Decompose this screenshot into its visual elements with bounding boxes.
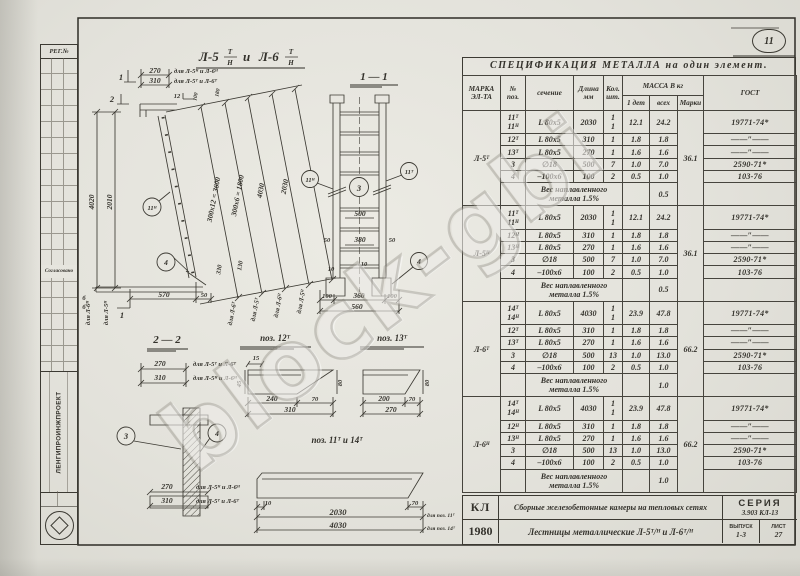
spec-cell: 7 (604, 254, 623, 266)
spec-cell: 23.9 (623, 301, 650, 324)
spec-cell: ——″—— (704, 134, 797, 146)
logo-ring-icon (45, 511, 74, 540)
side-view: 11ᴴ 4 270 для Л-5ᴴ и Л-6ᴴ 310 для Л-5ᵀ и… (82, 66, 336, 326)
marki-cell: 66.2 (678, 301, 704, 396)
spec-row: 12ᴴL 80х531011.81.8——″—— (463, 420, 797, 432)
title-conj: и (243, 49, 250, 64)
spec-cell: 13.0 (650, 445, 678, 457)
side-stamp: РЕГ.№ Согласовано ЛЕНГИПРОИНЖПРОЕКТ (40, 44, 78, 545)
dim-label: 270 (160, 482, 173, 491)
series-description: Сборные железобетонные камеры на тепловы… (499, 496, 723, 520)
title-sub: Н (226, 59, 233, 67)
spec-cell: 1 1 (604, 206, 623, 229)
spec-cell: 1.0 (650, 457, 678, 469)
spec-cell (623, 374, 650, 397)
spec-cell: –100х6 (526, 266, 574, 278)
spec-cell: 14ᵀ 14ᴴ (501, 301, 526, 324)
spec-cell: 7.0 (650, 158, 678, 170)
spec-cell: L 80х5 (526, 301, 574, 324)
spec-cell: 1.6 (650, 432, 678, 444)
detail-title: поз. 11ᵀ и 14ᵀ (312, 435, 364, 445)
col-header-poz: № поз. (501, 76, 526, 111)
spec-cell (501, 278, 526, 301)
spec-cell: 1.6 (650, 337, 678, 349)
title-sub: Н (287, 59, 294, 67)
spec-cell: 2030 (574, 111, 604, 134)
spec-cell: 1 (604, 134, 623, 146)
callout-label: 11ᵀ (405, 169, 414, 176)
spec-cell: ——″—— (704, 420, 797, 432)
spec-cell: L 80х5 (526, 111, 574, 134)
dim-label: 2030 (279, 178, 291, 196)
spec-table: МАРКА ЭЛ-ТА № поз. сечение Длина мм Кол.… (462, 75, 797, 493)
series-label: СЕРИЯ (738, 498, 781, 509)
dim-label: 240 (265, 394, 278, 403)
spec-cell: ——″—— (704, 337, 797, 349)
spec-cell: 11ᵀ 11ᴴ (501, 206, 526, 229)
spec-cell: 1.8 (650, 229, 678, 241)
col-header-mass: МАССА В кг (623, 76, 704, 96)
spec-cell: 1 1 (604, 111, 623, 134)
spec-cell: 13ᴴ (501, 241, 526, 253)
section-cut-label: 1 (120, 310, 124, 320)
spec-cell: 13 (604, 445, 623, 457)
spec-cell: 12ᵀ (501, 134, 526, 146)
spec-cell: 24.2 (650, 111, 678, 134)
spec-cell: L 80х5 (526, 420, 574, 432)
organization-block: ЛЕНГИПРОИНЖПРОЕКТ (41, 371, 77, 493)
mark-cell: Л-6ᵀ (463, 301, 501, 396)
spec-cell: 1.8 (650, 134, 678, 146)
spec-cell: L 80х5 (526, 432, 574, 444)
dim-note: для Л-5ᴴ и Л-6ᴴ (193, 375, 238, 382)
spec-cell: 1.0 (650, 374, 678, 397)
spec-cell: 19771-74* (704, 111, 797, 134)
dim-label: 310 (153, 373, 166, 382)
spec-cell: 13 (604, 349, 623, 361)
spec-cell: 19771-74* (704, 301, 797, 324)
spec-cell (501, 469, 526, 493)
spec-cell: 100 (574, 266, 604, 278)
spec-row: 3∅1850071.07.02590-71* (463, 158, 797, 170)
spec-cell: 12.1 (623, 206, 650, 229)
spec-row: 3∅1850071.07.02590-71* (463, 254, 797, 266)
spec-cell: 3 (501, 158, 526, 170)
spec-cell: 1.8 (650, 420, 678, 432)
title-mark-1: Л-5 (198, 49, 219, 64)
col-header-sec: сечение (526, 76, 574, 111)
spec-cell: 2590-71* (704, 254, 797, 266)
spec-row: 4–100х610020.51.0103-76 (463, 457, 797, 469)
spec-row: 4–100х610020.51.0103-76 (463, 361, 797, 373)
spec-row: 12ᵀL 80х531011.81.8——″—— (463, 134, 797, 146)
dim-label: 270 (384, 405, 397, 414)
position-details: поз. 12ᵀ 15 45 80 240 70 310 поз. 13ᵀ 80… (236, 333, 456, 533)
spec-cell: 1 1 (604, 397, 623, 420)
dim-note: для Л-6ᴴ (85, 300, 92, 325)
spec-row: Л-5ᴴ11ᵀ 11ᴴL 80х520301 112.124.236.11977… (463, 206, 797, 229)
dim-note: для Л-6ᵀ (227, 301, 239, 326)
spec-cell: 2590-71* (704, 349, 797, 361)
spec-cell: 1.6 (650, 241, 678, 253)
spec-cell (623, 278, 650, 301)
spec-cell: 11ᵀ 11ᴴ (501, 111, 526, 134)
spec-weld-row: Вес наплавленного металла 1.5%0.5 (463, 278, 797, 301)
spec-cell: 1 (604, 337, 623, 349)
spec-cell: 13ᵀ (501, 337, 526, 349)
marki-cell: 36.1 (678, 206, 704, 301)
spec-weld-row: Вес наплавленного металла 1.5%1.0 (463, 469, 797, 493)
spec-cell: ——″—— (704, 229, 797, 241)
spec-cell: 12ᴴ (501, 420, 526, 432)
spec-cell: 270 (574, 432, 604, 444)
spec-cell: 1.8 (623, 229, 650, 241)
drawing-sheet: РЕГ.№ Согласовано ЛЕНГИПРОИНЖПРОЕКТ 11 Л… (0, 0, 800, 576)
corner-mark: 11 (752, 29, 786, 53)
dim-label: 180 (214, 88, 222, 97)
spec-cell: 2 (604, 361, 623, 373)
spec-cell: L 80х5 (526, 241, 574, 253)
spec-row: Л-6ᴴ14ᵀ 14ᴴL 80х540301 123.947.866.21977… (463, 397, 797, 420)
dim-label: 80 (424, 379, 431, 386)
series-logo: КЛ (463, 496, 499, 520)
section-title: 2 — 2 (152, 334, 181, 346)
spec-cell: 2590-71* (704, 158, 797, 170)
spec-cell: 1 (604, 241, 623, 253)
dim-label: 50 (324, 237, 331, 244)
callout-label: 4 (163, 258, 168, 267)
dim-label: 10 (328, 266, 335, 273)
dim-label: 100 (192, 92, 200, 101)
dim-label: 4030 (255, 182, 267, 200)
spec-cell: 270 (574, 337, 604, 349)
spec-cell: 0.5 (650, 278, 678, 301)
dim-note: для Л-5ᵀ и Л-6ᵀ (196, 498, 239, 505)
spec-cell: 500 (574, 158, 604, 170)
spec-cell (704, 183, 797, 206)
dim-label: 15 (253, 355, 260, 362)
spec-cell: L 80х5 (526, 134, 574, 146)
spec-cell: 1.0 (650, 469, 678, 493)
spec-cell: 100 (574, 457, 604, 469)
spec-cell: 1.6 (623, 241, 650, 253)
dim-label: 70 (312, 396, 319, 403)
dim-label: 300х12 = 3600 (205, 176, 223, 224)
dim-note: для Л-5ᵀ и Л-6ᵀ (193, 361, 236, 368)
dim-label: 270 (153, 359, 166, 368)
spec-row: 3∅18500131.013.02590-71* (463, 349, 797, 361)
spec-cell: 13ᵀ (501, 146, 526, 158)
weld-note-cell: Вес наплавленного металла 1.5% (526, 374, 623, 397)
spec-cell: –100х6 (526, 170, 574, 182)
spec-cell (704, 278, 797, 301)
col-header-m1: 1 дет (623, 96, 650, 111)
spec-cell: 270 (574, 241, 604, 253)
detail-title: поз. 12ᵀ (260, 333, 290, 343)
section-cut-label: 2 (109, 94, 115, 104)
dim-note: для Л-6ᴴ (273, 292, 285, 318)
spec-cell: 2 (604, 457, 623, 469)
spec-cell: 1.0 (623, 445, 650, 457)
spec-cell (501, 183, 526, 206)
dim-label: 200 (377, 394, 390, 403)
spec-cell: 1 (604, 432, 623, 444)
spec-cell: 3 (501, 254, 526, 266)
spec-row: 4–100х610020.51.0103-76 (463, 170, 797, 182)
spec-cell (623, 183, 650, 206)
year-stamp: 1980 (463, 520, 499, 543)
section-2-2-view: 2 — 2 3 4 270 для Л-5ᵀ и Л-6ᵀ 310 для Л-… (117, 334, 241, 516)
pos-flag-label: 12 (174, 93, 181, 100)
title-mark-2: Л-6 (258, 49, 279, 64)
dim-label: 560 (351, 302, 363, 311)
dim-label: 50 (389, 237, 396, 244)
dim-label: 4030 (329, 520, 348, 530)
spec-row: 13ᵀL 80х527011.61.6——″—— (463, 146, 797, 158)
spec-cell: 12ᵀ (501, 325, 526, 337)
dim-note: для поз. 14ᵀ (427, 525, 456, 532)
spec-cell: 103-76 (704, 266, 797, 278)
spec-cell: 270 (574, 146, 604, 158)
spec-cell: ∅18 (526, 349, 574, 361)
mark-cell: Л-6ᴴ (463, 397, 501, 493)
spec-cell: 1 (604, 229, 623, 241)
dim-note: для Л-5ᴴ (103, 300, 110, 325)
dim-label: 70 (409, 396, 416, 403)
dim-label: 570 (158, 290, 170, 299)
title-block: КЛ 1980 Сборные железобетонные камеры на… (462, 495, 796, 545)
marki-cell: 66.2 (678, 397, 704, 493)
dim-label: 2030 (329, 507, 348, 517)
spec-cell: 100 (574, 170, 604, 182)
spec-cell: 103-76 (704, 361, 797, 373)
spec-cell: 1.0 (623, 158, 650, 170)
spec-cell: 1.8 (650, 325, 678, 337)
spec-cell: 14ᵀ 14ᴴ (501, 397, 526, 420)
spec-cell: ——″—— (704, 146, 797, 158)
spec-cell: 1.6 (623, 146, 650, 158)
dim-label: 2010 (105, 194, 114, 210)
dim-note: для Л-5ᴴ и Л-6ᴴ (174, 68, 219, 75)
section-cut-label: 1 (119, 72, 123, 82)
dim-label: 10 (361, 261, 368, 268)
issue-value: 1-3 (736, 530, 746, 539)
spec-cell: ——″—— (704, 241, 797, 253)
callout-label: 11ᴴ (306, 177, 316, 184)
mark-cell: Л-5ᴴ (463, 206, 501, 301)
callout-label: 3 (123, 431, 129, 441)
spec-cell: 19771-74* (704, 397, 797, 420)
spec-cell (501, 374, 526, 397)
spec-cell: 2590-71* (704, 445, 797, 457)
title-sup: Т (289, 48, 294, 56)
sheet-value: 27 (775, 530, 783, 539)
dim-label: 310 (160, 496, 173, 505)
main-title: Л-5 Т Н и Л-6 Т Н (196, 48, 305, 68)
spec-cell: 1.8 (623, 420, 650, 432)
dim-label: 380 (353, 235, 366, 244)
spec-cell: 0.5 (650, 183, 678, 206)
series-value: 3.903 КЛ-13 (742, 509, 778, 517)
dim-label: 100 (387, 293, 398, 300)
spec-header-row: МАРКА ЭЛ-ТА № поз. сечение Длина мм Кол.… (463, 76, 797, 96)
callout-label: 3 (356, 183, 362, 193)
spec-cell: 103-76 (704, 170, 797, 182)
spec-cell: ——″—— (704, 325, 797, 337)
dim-note: для Л-5ᵀ (250, 297, 262, 322)
signature-grid (41, 58, 77, 371)
spec-row: 3∅18500131.013.02590-71* (463, 445, 797, 457)
spec-cell: 1 (604, 420, 623, 432)
spec-row: 4–100х610020.51.0103-76 (463, 266, 797, 278)
spec-cell: 1.8 (623, 134, 650, 146)
spec-cell: 1.0 (650, 266, 678, 278)
dim-label: 50 (201, 292, 208, 299)
spec-cell: 1.6 (623, 432, 650, 444)
dim-label: 330 (215, 264, 224, 277)
spec-cell: 1.0 (623, 254, 650, 266)
spec-cell: 7.0 (650, 254, 678, 266)
dim-label: 310 (283, 405, 296, 414)
spec-weld-row: Вес наплавленного металла 1.5%1.0 (463, 374, 797, 397)
spec-cell: 100 (574, 361, 604, 373)
col-header-mark: МАРКА ЭЛ-ТА (463, 76, 501, 111)
dim-label: 500 (354, 209, 366, 218)
dim-label: 360 (352, 291, 365, 300)
callout-label: 4 (214, 429, 219, 438)
spec-cell: 1.6 (650, 146, 678, 158)
spec-cell: 0.5 (623, 170, 650, 182)
spec-cell: 4 (501, 361, 526, 373)
sheet-title: Лестницы металлические Л-5ᵀ/ᴴ и Л-6ᵀ/ᴴ (499, 520, 723, 543)
spec-cell: 0.5 (623, 266, 650, 278)
spec-cell: ∅18 (526, 158, 574, 170)
col-header-len: Длина мм (574, 76, 604, 111)
agreed-label: Согласовано (41, 265, 77, 278)
dim-label: 310 (148, 76, 161, 85)
spec-cell: 2 (604, 170, 623, 182)
spec-cell: 310 (574, 229, 604, 241)
spec-cell: 1 (604, 325, 623, 337)
spec-weld-row: Вес наплавленного металла 1.5%0.5 (463, 183, 797, 206)
dim-note: для Л-5ᵀ и Л-6ᵀ (174, 78, 217, 85)
spec-row: 13ᵀL 80х527011.61.6——″—— (463, 337, 797, 349)
spec-cell: 500 (574, 445, 604, 457)
mark-cell: Л-5ᵀ (463, 111, 501, 206)
spec-cell: 310 (574, 420, 604, 432)
detail-title: поз. 13ᵀ (377, 333, 407, 343)
institute-logo (41, 506, 77, 544)
spec-cell: 13.0 (650, 349, 678, 361)
section-title: 1 — 1 (360, 71, 388, 83)
spec-cell: 500 (574, 349, 604, 361)
spec-cell: 4030 (574, 397, 604, 420)
spec-cell: –100х6 (526, 457, 574, 469)
dim-label: 270 (148, 66, 161, 75)
signature-row (41, 491, 77, 507)
spec-cell: L 80х5 (526, 206, 574, 229)
spec-cell: 24.2 (650, 206, 678, 229)
marki-cell: 36.1 (678, 111, 704, 206)
spec-row: 12ᵀL 80х531011.81.8——″—— (463, 325, 797, 337)
weld-note-cell: Вес наплавленного металла 1.5% (526, 278, 623, 301)
series-number: СЕРИЯ 3.903 КЛ-13 (723, 496, 797, 520)
callout-label: 4 (416, 257, 421, 266)
spec-cell: 310 (574, 325, 604, 337)
title-sup: Т (228, 48, 233, 56)
spec-cell: 4030 (574, 301, 604, 324)
spec-cell: L 80х5 (526, 397, 574, 420)
spec-cell: 47.8 (650, 397, 678, 420)
dim-label: 70 (412, 500, 419, 507)
spec-cell: 47.8 (650, 301, 678, 324)
col-header-qty: Кол. шт. (604, 76, 623, 111)
spec-cell: 0.5 (623, 457, 650, 469)
col-header-marki: Марки (678, 96, 704, 111)
spec-cell: 310 (574, 134, 604, 146)
spec-cell (704, 469, 797, 493)
spec-row: Л-6ᵀ14ᵀ 14ᴴL 80х540301 123.947.866.21977… (463, 301, 797, 324)
spec-cell: 2030 (574, 206, 604, 229)
spec-cell: 1 (604, 146, 623, 158)
section-1-1-view: 1 — 1 11ᴴ 11ᵀ 3 4 500 380 50 50 10 10 10… (302, 71, 428, 314)
organization-name: ЛЕНГИПРОИНЖПРОЕКТ (56, 391, 63, 473)
spec-cell: 3 (501, 349, 526, 361)
spec-cell: 500 (574, 254, 604, 266)
spec-row: 13ᴴL 80х527011.61.6——″—— (463, 432, 797, 444)
spec-cell: –100х6 (526, 361, 574, 373)
spec-cell: 12.1 (623, 111, 650, 134)
spec-cell: 1.0 (650, 170, 678, 182)
dim-note: для поз. 11ᵀ (427, 512, 456, 519)
spec-cell: L 80х5 (526, 229, 574, 241)
weld-note-cell: Вес наплавленного металла 1.5% (526, 183, 623, 206)
callout-label: 11ᴴ (148, 205, 158, 212)
dim-label: 10 (265, 500, 272, 507)
spec-row: 12ᴴL 80х531011.81.8——″—— (463, 229, 797, 241)
dim-label: 100 (322, 293, 333, 300)
dim-label: 4020 (87, 194, 96, 210)
spec-cell: L 80х5 (526, 325, 574, 337)
spec-cell: ∅18 (526, 445, 574, 457)
spec-cell: 3 (501, 445, 526, 457)
spec-cell: 1 1 (604, 301, 623, 324)
spec-cell: 12ᴴ (501, 229, 526, 241)
spec-cell: 4 (501, 266, 526, 278)
spec-cell: L 80х5 (526, 337, 574, 349)
spec-cell: 1.0 (650, 361, 678, 373)
spec-cell (623, 469, 650, 493)
dim-label: 80 (337, 379, 344, 386)
sheet-cell: ЛИСТ 27 (760, 520, 797, 543)
spec-cell: 4 (501, 457, 526, 469)
spec-cell: 1.0 (623, 349, 650, 361)
spec-cell: 7 (604, 158, 623, 170)
reg-number-label: РЕГ.№ (41, 45, 77, 59)
spec-cell: 1.8 (623, 325, 650, 337)
dim-note: для Л-5ᴴ и Л-6ᴴ (196, 484, 241, 491)
spec-row: 13ᴴL 80х527011.61.6——″—— (463, 241, 797, 253)
spec-row: Л-5ᵀ11ᵀ 11ᴴL 80х520301 112.124.236.11977… (463, 111, 797, 134)
spec-title: СПЕЦИФИКАЦИЯ МЕТАЛЛА на один элемент. (462, 57, 796, 76)
spec-cell: 0.5 (623, 361, 650, 373)
col-header-gost: ГОСТ (704, 76, 797, 111)
spec-cell: 19771-74* (704, 206, 797, 229)
spec-cell: 2 (604, 266, 623, 278)
spec-cell: 4 (501, 170, 526, 182)
weld-note-cell: Вес наплавленного металла 1.5% (526, 469, 623, 493)
spec-cell: 13ᴴ (501, 432, 526, 444)
